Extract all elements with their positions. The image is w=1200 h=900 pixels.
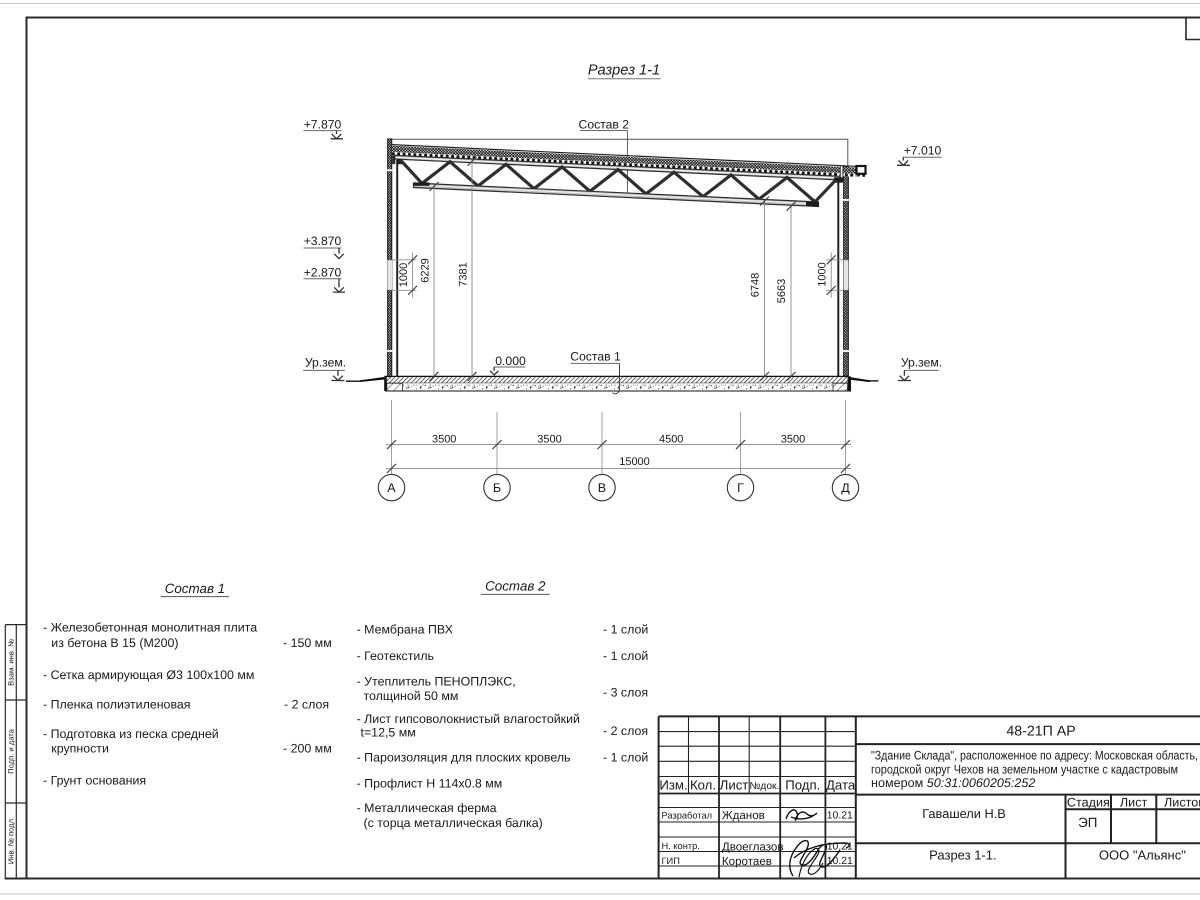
svg-text:1000: 1000	[817, 262, 829, 286]
svg-text:Б: Б	[493, 481, 501, 495]
svg-text:ЭП: ЭП	[1078, 815, 1097, 830]
svg-text:№док.: №док.	[749, 781, 779, 792]
svg-text:Коротаев: Коротаев	[722, 855, 772, 868]
svg-text:1000: 1000	[398, 263, 410, 287]
svg-text:- 150 мм: - 150 мм	[283, 636, 332, 650]
svg-text:- 1 слой: - 1 слой	[603, 649, 648, 663]
svg-text:из бетона В 15 (М200): из бетона В 15 (М200)	[51, 636, 178, 650]
svg-text:Разрез 1-1.: Разрез 1-1.	[929, 847, 996, 862]
svg-text:3500: 3500	[781, 434, 805, 446]
svg-text:Листов: Листов	[1164, 796, 1200, 810]
svg-text:- Геотекстиль: - Геотекстиль	[357, 649, 434, 663]
svg-text:Взам. инв. №: Взам. инв. №	[7, 639, 16, 686]
svg-text:- Железобетонная монолитная п: - Железобетонная монолитная плита	[43, 621, 257, 635]
svg-text:- 2 слоя: - 2 слоя	[603, 724, 648, 738]
svg-text:(с торца металлическая балка): (с торца металлическая балка)	[364, 816, 543, 830]
svg-text:4500: 4500	[659, 434, 683, 446]
svg-text:Гавашели Н.В: Гавашели Н.В	[922, 806, 1006, 821]
svg-text:крупности: крупности	[51, 742, 109, 756]
svg-text:ООО "Альянс": ООО "Альянс"	[1099, 847, 1186, 862]
svg-text:А: А	[387, 481, 396, 495]
svg-text:Подп. и дата: Подп. и дата	[7, 728, 16, 774]
svg-text:48-21П АР: 48-21П АР	[1006, 723, 1075, 739]
svg-text:+7.010: +7.010	[904, 144, 942, 158]
svg-text:номером 50:31:0060205:252: номером 50:31:0060205:252	[871, 776, 1035, 790]
svg-text:городской округ Чехов на земел: городской округ Чехов на земельном участ…	[871, 763, 1178, 777]
svg-text:Подп.: Подп.	[785, 778, 820, 793]
svg-text:Ур.зем.: Ур.зем.	[305, 356, 346, 370]
svg-text:- 200 мм: - 200 мм	[283, 742, 332, 756]
svg-text:+3.870: +3.870	[304, 234, 342, 248]
svg-text:В: В	[598, 481, 606, 495]
svg-text:Двоеглазов: Двоеглазов	[722, 840, 784, 853]
svg-text:Ур.зем.: Ур.зем.	[901, 355, 942, 369]
svg-text:Разрез 1-1: Разрез 1-1	[588, 63, 660, 79]
svg-text:10.21: 10.21	[827, 810, 853, 821]
svg-text:Лист: Лист	[1120, 796, 1148, 810]
svg-text:- Сетка армирующая Ø3 100х100: - Сетка армирующая Ø3 100х100 мм	[43, 668, 254, 682]
svg-text:- Пленка полиэтиленовая: - Пленка полиэтиленовая	[43, 698, 191, 712]
svg-text:Инв. № подл.: Инв. № подл.	[7, 817, 16, 864]
svg-text:15000: 15000	[619, 456, 650, 468]
svg-text:ГИП: ГИП	[662, 856, 680, 866]
svg-text:3500: 3500	[537, 434, 561, 446]
svg-text:Изм.: Изм.	[659, 778, 687, 793]
svg-text:- Лист гипсоволокнистый влагос: - Лист гипсоволокнистый влагостойкий	[357, 712, 580, 726]
svg-text:Состав 1: Состав 1	[570, 350, 621, 364]
svg-text:0.000: 0.000	[495, 354, 526, 368]
svg-text:Н. контр.: Н. контр.	[662, 841, 700, 851]
svg-text:толщиной 50 мм: толщиной 50 мм	[364, 689, 459, 703]
svg-text:6748: 6748	[750, 273, 762, 297]
svg-text:Состав 2: Состав 2	[579, 117, 630, 131]
svg-text:- 3 слоя: - 3 слоя	[603, 686, 648, 700]
svg-text:+7.870: +7.870	[304, 118, 342, 132]
svg-text:6229: 6229	[420, 258, 432, 282]
svg-text:- 1 слой: - 1 слой	[603, 622, 648, 636]
svg-text:Г: Г	[737, 481, 744, 495]
svg-text:Жданов: Жданов	[722, 809, 765, 822]
svg-text:Дата: Дата	[826, 778, 856, 793]
svg-text:Кол.: Кол.	[690, 778, 716, 793]
svg-text:3500: 3500	[432, 434, 456, 446]
svg-text:5663: 5663	[776, 279, 788, 303]
svg-text:Разработал: Разработал	[662, 810, 713, 820]
svg-text:"Здание Склада", расположенное: "Здание Склада", расположенное по адресу…	[871, 749, 1198, 763]
svg-text:Состав 2: Состав 2	[485, 579, 546, 594]
svg-text:- Металлическая ферма: - Металлическая ферма	[357, 801, 497, 815]
svg-text:- Профлист Н 114х0.8 мм: - Профлист Н 114х0.8 мм	[357, 776, 503, 790]
svg-text:7381: 7381	[458, 262, 470, 286]
svg-text:Стадия: Стадия	[1067, 796, 1110, 810]
svg-text:Д: Д	[841, 481, 850, 495]
svg-text:- 1 слой: - 1 слой	[603, 750, 648, 764]
svg-text:Состав 1: Состав 1	[165, 581, 225, 596]
svg-text:- Утеплитель ПЕНОПЛЭКС,: - Утеплитель ПЕНОПЛЭКС,	[357, 675, 516, 689]
svg-text:- 2 слоя: - 2 слоя	[284, 698, 329, 712]
svg-text:t=12,5 мм: t=12,5 мм	[361, 726, 416, 740]
svg-text:- Подготовка из песка средней: - Подготовка из песка средней	[43, 727, 219, 741]
svg-text:- Мембрана ПВХ: - Мембрана ПВХ	[357, 622, 453, 636]
svg-text:- Грунт основания: - Грунт основания	[43, 774, 146, 788]
svg-text:- Пароизоляция для плоских кро: - Пароизоляция для плоских кровель	[357, 750, 571, 764]
svg-text:+2.870: +2.870	[304, 265, 342, 279]
svg-text:Лист: Лист	[720, 778, 749, 793]
